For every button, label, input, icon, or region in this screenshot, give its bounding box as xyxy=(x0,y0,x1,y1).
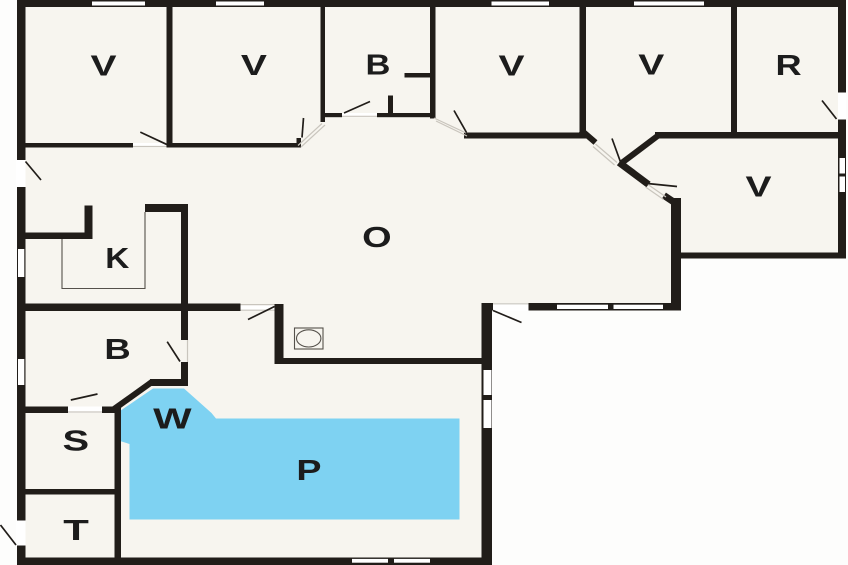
svg-text:S: S xyxy=(62,426,89,457)
svg-text:T: T xyxy=(63,515,89,547)
svg-text:V: V xyxy=(90,50,116,82)
svg-text:B: B xyxy=(365,48,390,80)
svg-text:R: R xyxy=(775,50,801,81)
svg-text:B: B xyxy=(104,333,130,365)
svg-text:V: V xyxy=(745,171,771,203)
svg-text:O: O xyxy=(362,223,391,254)
svg-text:K: K xyxy=(105,242,130,274)
svg-text:P: P xyxy=(296,455,321,487)
svg-text:V: V xyxy=(638,49,664,81)
svg-text:W: W xyxy=(153,403,192,435)
svg-text:V: V xyxy=(241,50,267,82)
svg-text:V: V xyxy=(498,51,524,83)
